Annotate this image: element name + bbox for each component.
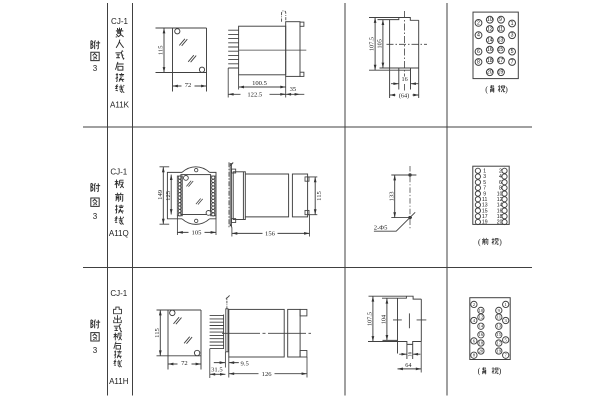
svg-text:20: 20 xyxy=(479,348,484,353)
svg-text:10: 10 xyxy=(479,308,484,313)
svg-text:20: 20 xyxy=(497,220,503,226)
svg-text:107.5: 107.5 xyxy=(368,37,375,51)
svg-text:1: 1 xyxy=(511,21,514,27)
svg-text:(64): (64) xyxy=(399,92,409,99)
svg-text:9.5: 9.5 xyxy=(241,360,250,367)
svg-text:105: 105 xyxy=(377,39,384,48)
svg-text:17: 17 xyxy=(498,58,504,64)
svg-text:13: 13 xyxy=(498,38,504,44)
svg-text:3: 3 xyxy=(93,212,98,221)
svg-text:115: 115 xyxy=(316,190,323,200)
svg-text:16: 16 xyxy=(479,332,484,337)
svg-text:64: 64 xyxy=(405,362,411,369)
svg-text:19: 19 xyxy=(482,220,488,226)
svg-text:115: 115 xyxy=(157,45,164,55)
svg-text:107.5: 107.5 xyxy=(366,312,373,326)
svg-text:11: 11 xyxy=(498,27,503,33)
svg-text:): ) xyxy=(499,367,502,376)
svg-text:8: 8 xyxy=(477,60,480,66)
svg-text:3: 3 xyxy=(511,33,514,39)
svg-text:3: 3 xyxy=(93,346,98,355)
svg-text:2-Φ5: 2-Φ5 xyxy=(374,224,388,231)
svg-text:125: 125 xyxy=(165,190,172,201)
svg-text:35: 35 xyxy=(290,86,297,93)
svg-text:): ) xyxy=(499,237,502,246)
svg-text:149: 149 xyxy=(157,189,164,200)
svg-text:CJ-1: CJ-1 xyxy=(111,17,128,26)
svg-text:9: 9 xyxy=(499,17,502,23)
svg-text:5: 5 xyxy=(511,49,514,55)
svg-text:72: 72 xyxy=(181,360,188,367)
svg-text:126: 126 xyxy=(262,371,273,378)
svg-text:2: 2 xyxy=(477,20,480,26)
svg-text:14: 14 xyxy=(479,324,484,329)
svg-text:12: 12 xyxy=(479,315,484,320)
svg-text:122.5: 122.5 xyxy=(247,91,263,98)
svg-text:(: ( xyxy=(478,237,481,246)
svg-text:A11H: A11H xyxy=(109,377,129,386)
svg-text:(: ( xyxy=(478,367,481,376)
svg-text:20: 20 xyxy=(487,70,493,76)
svg-text:10: 10 xyxy=(487,17,493,23)
svg-text:CJ-1: CJ-1 xyxy=(110,168,127,177)
svg-text:3: 3 xyxy=(93,64,98,73)
svg-text:15: 15 xyxy=(498,47,504,53)
svg-text:17: 17 xyxy=(497,340,502,345)
svg-text:12: 12 xyxy=(487,27,493,33)
svg-text:72: 72 xyxy=(185,82,192,89)
svg-text:11: 11 xyxy=(497,315,502,320)
svg-text:4: 4 xyxy=(477,33,480,39)
svg-text:15: 15 xyxy=(497,332,502,337)
svg-text:31.5: 31.5 xyxy=(211,367,223,374)
svg-text:18: 18 xyxy=(479,340,484,345)
svg-text:7: 7 xyxy=(511,60,514,66)
svg-text:): ) xyxy=(505,85,508,94)
svg-text:115: 115 xyxy=(154,327,161,337)
svg-text:133: 133 xyxy=(388,191,395,202)
svg-text:18: 18 xyxy=(487,58,493,64)
svg-text:A11Q: A11Q xyxy=(109,229,129,238)
svg-text:14: 14 xyxy=(487,38,493,44)
svg-text:CJ-1: CJ-1 xyxy=(110,289,127,298)
svg-text:105: 105 xyxy=(192,230,203,237)
svg-text:156: 156 xyxy=(265,231,276,238)
svg-text:A11K: A11K xyxy=(110,100,130,109)
svg-text:19: 19 xyxy=(497,348,502,353)
svg-text:16: 16 xyxy=(409,351,414,357)
svg-text:13: 13 xyxy=(497,324,502,329)
svg-text:100.5: 100.5 xyxy=(252,80,268,87)
svg-text:19: 19 xyxy=(498,70,504,76)
svg-text:6: 6 xyxy=(477,49,480,55)
svg-text:104: 104 xyxy=(381,315,388,324)
svg-text:16: 16 xyxy=(487,47,493,53)
svg-text:16: 16 xyxy=(402,76,408,83)
svg-text:(: ( xyxy=(485,85,488,94)
